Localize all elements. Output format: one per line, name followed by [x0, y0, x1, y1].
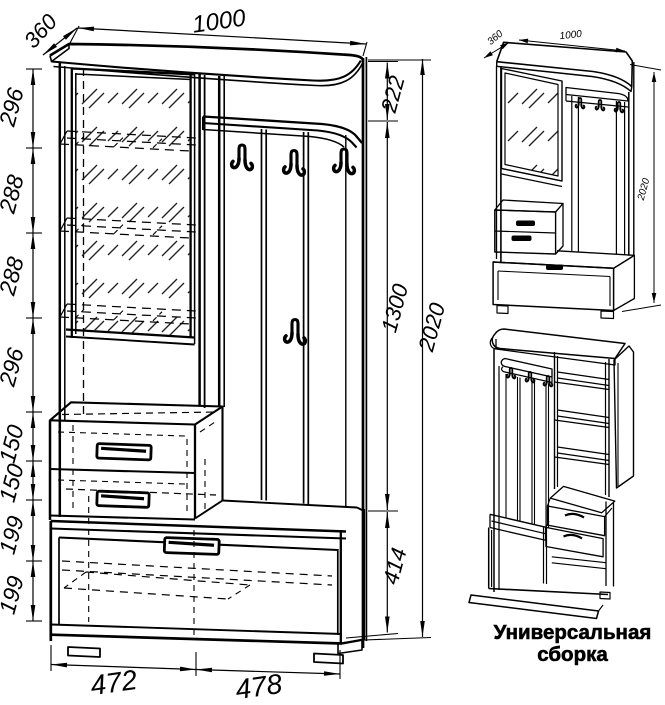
svg-text:Универсальная: Универсальная	[494, 621, 652, 644]
svg-text:сборка: сборка	[537, 643, 608, 666]
svg-text:478: 478	[233, 668, 284, 700]
svg-text:472: 472	[88, 664, 139, 700]
